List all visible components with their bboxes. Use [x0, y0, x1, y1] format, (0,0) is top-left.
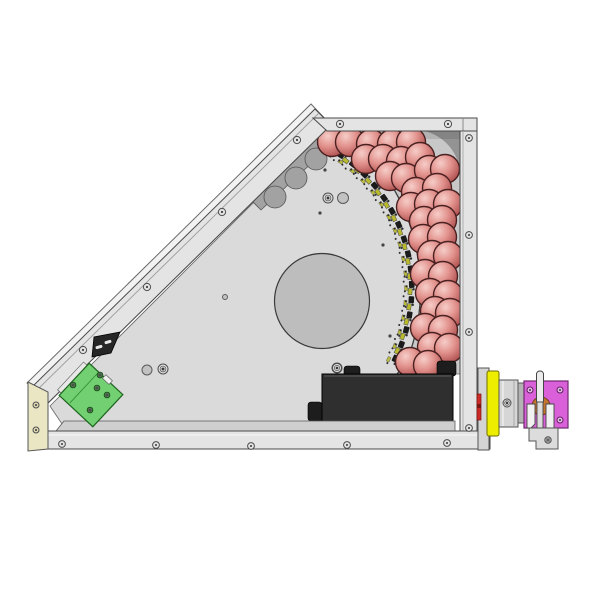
plate-screw — [323, 193, 333, 203]
cad-assembly-render — [0, 0, 600, 600]
pin-hole — [318, 211, 321, 214]
bottom-rail — [42, 421, 490, 449]
clamp-jaw-left — [527, 404, 535, 428]
pcb-screw — [70, 382, 76, 388]
pin-hole — [381, 243, 384, 246]
block-screw — [527, 387, 533, 393]
pin-hole — [323, 168, 326, 171]
diagonal-rail-screw — [218, 208, 225, 215]
box-screw — [333, 364, 342, 373]
yellow-flange — [487, 371, 499, 436]
wall-screw — [466, 135, 473, 142]
cad-scene-canvas — [0, 0, 600, 600]
toggle-clamp-handle — [537, 371, 544, 404]
box-mount-tab — [308, 402, 322, 421]
right-wall — [460, 131, 477, 448]
bottom-rail-screw — [59, 441, 66, 448]
wall-screw — [466, 425, 473, 432]
red-spacer-notch — [477, 404, 481, 408]
block-screw — [557, 387, 563, 393]
top-rail-screw — [336, 120, 343, 127]
wall-screw — [466, 232, 473, 239]
end-cap-screw — [33, 427, 39, 433]
bottom-rail-screw — [153, 442, 160, 449]
diagonal-rail-screw — [143, 283, 150, 290]
pcb-screw — [104, 392, 110, 398]
diagonal-rail-screw — [79, 346, 86, 353]
diagonal-rail-screw — [293, 136, 300, 143]
plate-screw — [158, 364, 168, 374]
block-screw — [557, 417, 563, 423]
center-opening — [275, 254, 370, 349]
bottom-lip — [56, 421, 455, 431]
bottom-rail-screw — [444, 440, 451, 447]
end-cap-screw — [33, 402, 39, 408]
pin-hole — [388, 334, 391, 337]
plate-hole — [142, 365, 152, 375]
clamp-jaw-right — [546, 404, 554, 428]
pcb-screw — [97, 372, 103, 378]
bottom-rail-screw — [344, 442, 351, 449]
bracket-screw — [545, 437, 551, 443]
top-rail-screw — [444, 120, 451, 127]
spacer-ring — [518, 383, 524, 423]
left-end-cap — [28, 382, 48, 451]
wall-screw — [466, 329, 473, 336]
pcb-screw — [87, 407, 93, 413]
cylinder-screw — [503, 399, 511, 407]
pcb-screw — [94, 385, 100, 391]
plate-hole — [223, 295, 228, 300]
bottom-rail-screw — [248, 443, 255, 450]
plate-hole — [338, 193, 349, 204]
